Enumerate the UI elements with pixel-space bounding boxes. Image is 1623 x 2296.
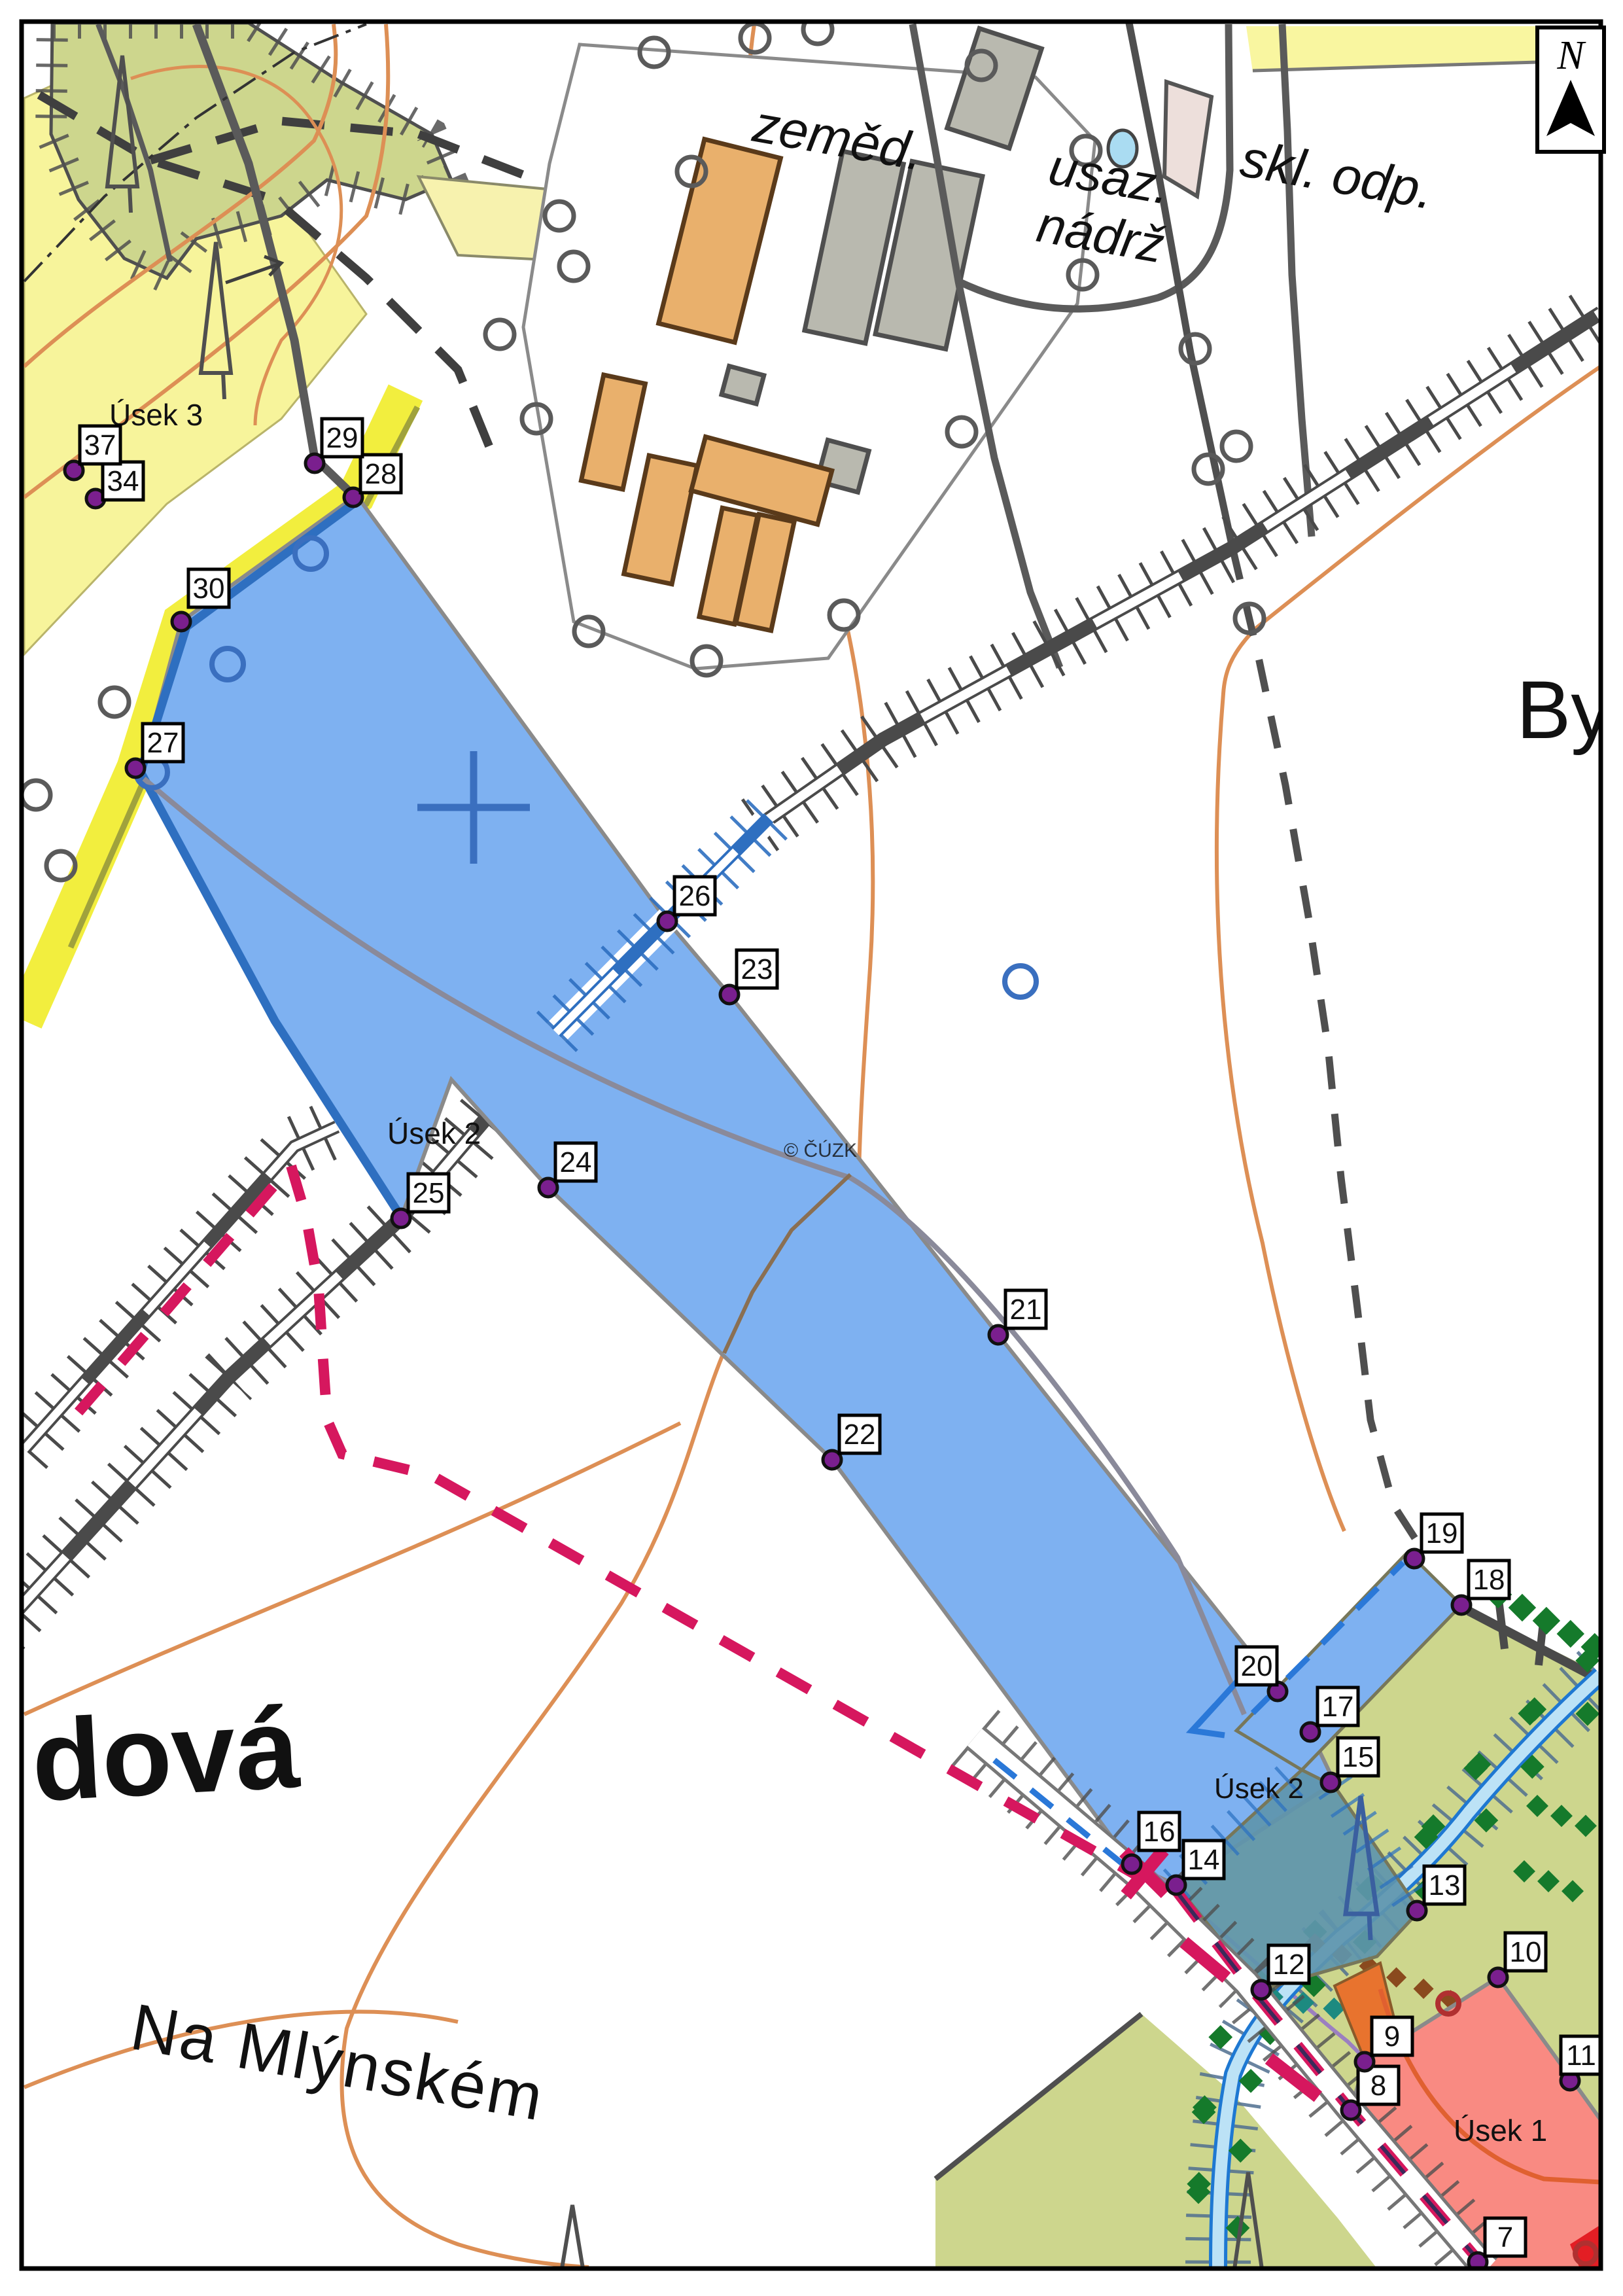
marker-number: 8	[1370, 2070, 1386, 2102]
marker-number: 28	[365, 458, 397, 490]
region-label-by: By	[1516, 665, 1612, 756]
marker-number: 15	[1342, 1741, 1374, 1773]
marker-number: 20	[1241, 1650, 1273, 1682]
marker-number: 17	[1322, 1691, 1354, 1723]
map-canvas: Úsek 3Úsek 2Úsek 2Úsek 1zeměd.usaz.nádrž…	[0, 0, 1623, 2296]
region-label-dova: dová	[29, 1684, 303, 1826]
marker-number: 10	[1510, 1936, 1542, 1968]
marker-number: 29	[326, 422, 358, 454]
marker-number: 37	[84, 429, 116, 461]
marker-number: 24	[560, 1146, 592, 1178]
marker-number: 11	[1566, 2040, 1596, 2072]
north-letter: N	[1556, 33, 1586, 78]
map-content: Úsek 3Úsek 2Úsek 2Úsek 1zeměd.usaz.nádrž…	[0, 0, 1623, 2296]
marker-dot	[172, 612, 190, 631]
marker-number: 13	[1429, 1869, 1461, 1901]
map-stage: Úsek 3Úsek 2Úsek 2Úsek 1zeměd.usaz.nádrž…	[0, 0, 1623, 2296]
region-label-usek-2-low: Úsek 2	[1214, 1773, 1304, 1805]
region-label-usek-3: Úsek 3	[109, 398, 203, 432]
marker-number: 34	[107, 465, 139, 497]
marker-number: 22	[844, 1419, 876, 1451]
marker-number: 16	[1143, 1816, 1176, 1848]
marker-number: 18	[1473, 1564, 1505, 1596]
north-box: N	[1537, 27, 1604, 152]
marker-number: 30	[193, 573, 225, 605]
marker-number: 14	[1188, 1844, 1220, 1876]
building-gray	[722, 366, 764, 404]
watermark: © ČÚZK	[784, 1139, 857, 1161]
marker-number: 12	[1273, 1949, 1305, 1981]
marker-number: 7	[1497, 2221, 1513, 2253]
marker-number: 19	[1426, 1517, 1458, 1549]
marker-dot	[1123, 1855, 1141, 1873]
marker-number: 25	[413, 1177, 445, 1209]
marker-number: 21	[1010, 1294, 1042, 1326]
marker-number: 9	[1384, 2021, 1400, 2053]
region-label-usek-1: Úsek 1	[1454, 2113, 1547, 2147]
marker-number: 27	[147, 727, 179, 759]
marker-number: 23	[741, 953, 773, 985]
region-label-usek-2-mid: Úsek 2	[387, 1116, 481, 1150]
marker-number: 26	[679, 880, 711, 912]
